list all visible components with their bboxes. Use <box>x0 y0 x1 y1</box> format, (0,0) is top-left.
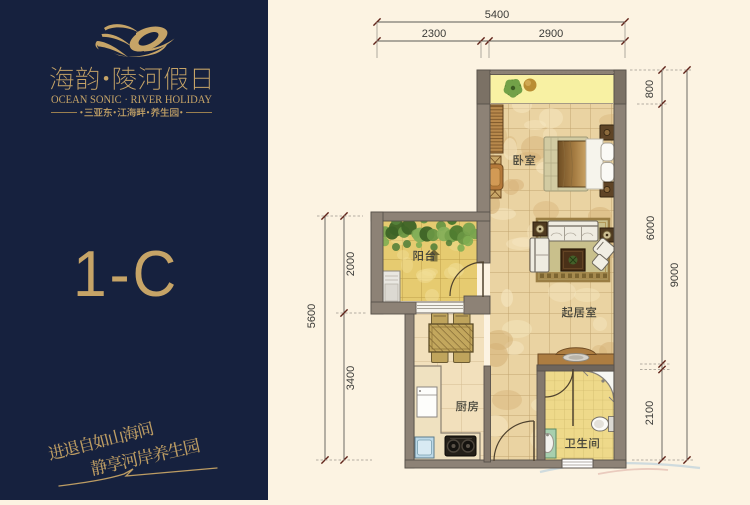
svg-text:2300: 2300 <box>422 28 446 40</box>
svg-text:3400: 3400 <box>345 366 357 390</box>
svg-text:6000: 6000 <box>645 216 657 240</box>
svg-text:9000: 9000 <box>669 263 681 287</box>
svg-text:5400: 5400 <box>485 9 509 21</box>
svg-text:2900: 2900 <box>539 28 563 40</box>
svg-text:800: 800 <box>644 80 656 98</box>
svg-text:5600: 5600 <box>306 304 318 328</box>
svg-text:2000: 2000 <box>345 252 357 276</box>
svg-text:2100: 2100 <box>644 401 656 425</box>
svg-text:1-C: 1-C <box>73 237 179 310</box>
svg-text:OCEAN SONIC · RIVER HOLIDAY: OCEAN SONIC · RIVER HOLIDAY <box>51 92 212 106</box>
